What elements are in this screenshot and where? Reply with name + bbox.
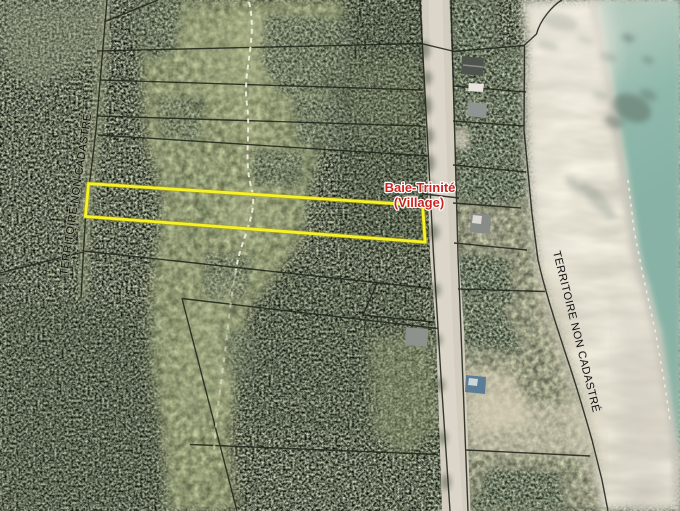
- svg-text:Baie-Trinité: Baie-Trinité: [385, 180, 456, 195]
- svg-text:(Village): (Village): [394, 195, 444, 210]
